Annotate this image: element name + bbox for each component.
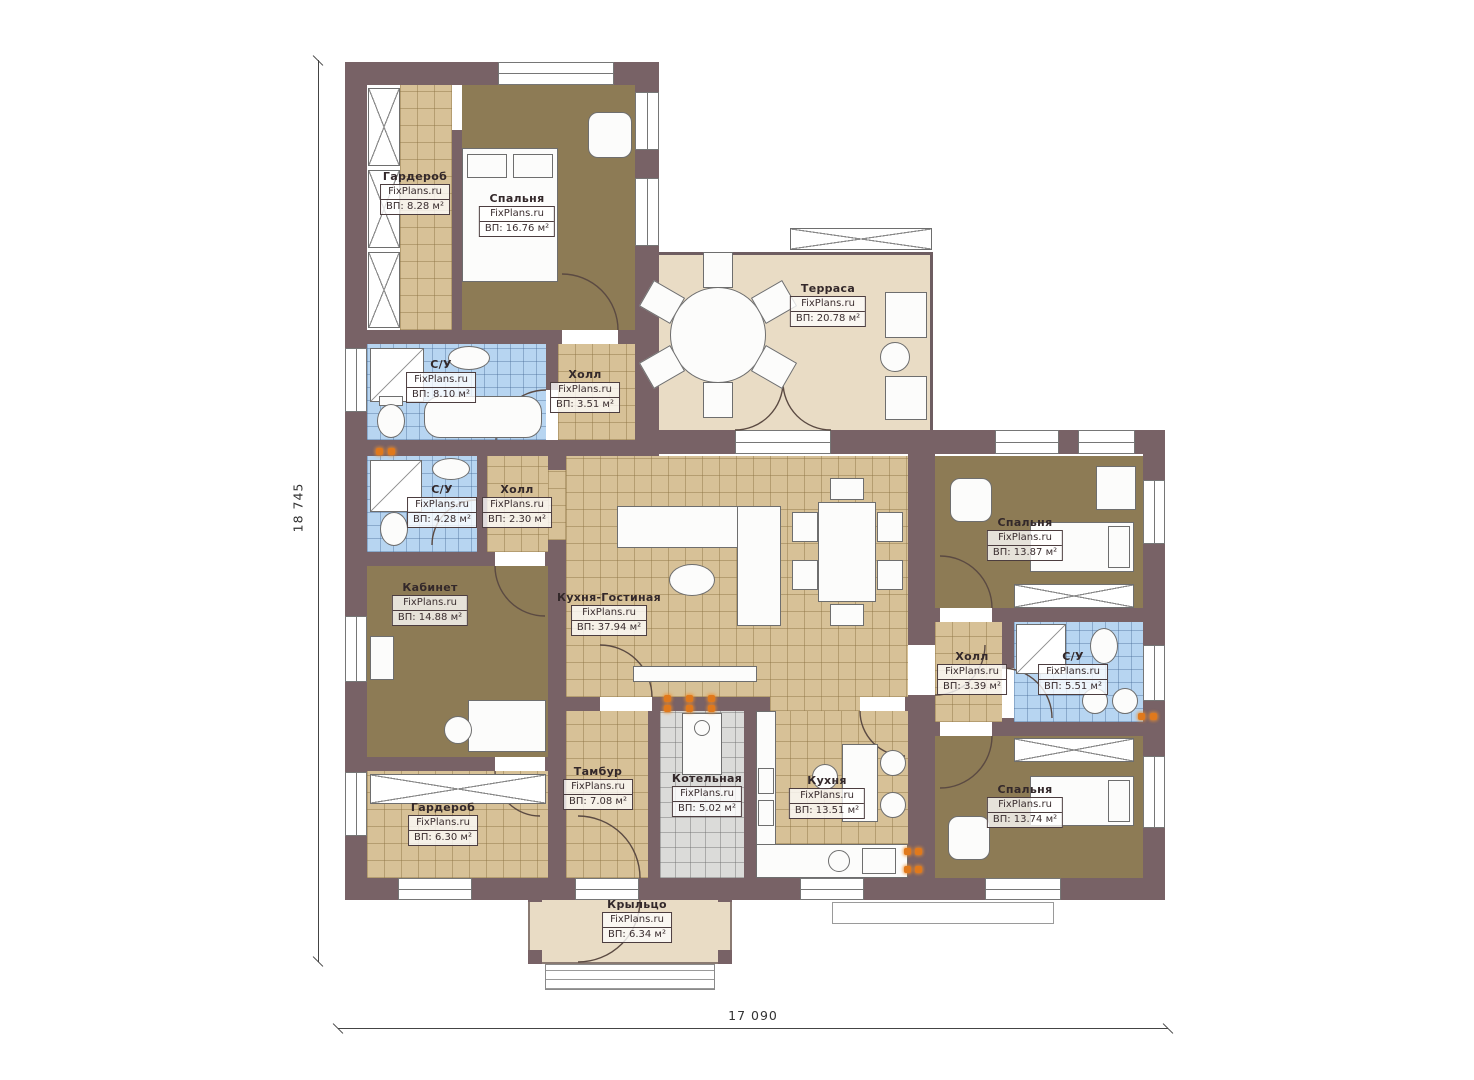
room-area: ВП: 8.28 м² (381, 200, 449, 214)
tv-stand (633, 666, 757, 682)
light-dot (664, 705, 671, 712)
toilet (380, 512, 408, 546)
room-name: С/У (406, 358, 476, 371)
light-dot (376, 448, 383, 455)
watermark: FixPlans.ru (381, 185, 449, 200)
chair (880, 792, 906, 818)
light-dot (1150, 713, 1157, 720)
window (1078, 430, 1135, 454)
light-dot (904, 848, 911, 855)
room-name: Крыльцо (602, 898, 672, 911)
room-area: ВП: 13.74 м² (988, 813, 1062, 827)
toilet (377, 404, 405, 438)
watermark: FixPlans.ru (393, 596, 467, 611)
chair (830, 604, 864, 626)
pillow (467, 154, 507, 178)
pillow (513, 154, 553, 178)
nightstand (1096, 466, 1136, 510)
terrace-seat (885, 292, 927, 338)
porch-post (528, 950, 542, 964)
door-gap (495, 757, 545, 771)
window (345, 616, 367, 682)
room-label-terrace: Терраса FixPlans.ru ВП: 20.78 м² (790, 282, 866, 327)
room-name: Терраса (790, 282, 866, 295)
room-label-kitchen: Кухня FixPlans.ru ВП: 13.51 м² (789, 774, 865, 819)
window (635, 178, 659, 246)
appliance (758, 800, 774, 826)
room-label-bathroom-3: С/У FixPlans.ru ВП: 5.51 м² (1038, 650, 1108, 695)
room-name: Кухня (789, 774, 865, 787)
pillow (1108, 780, 1130, 822)
room-label-kitchen-living: Кухня-Гостиная FixPlans.ru ВП: 37.94 м² (557, 591, 661, 636)
window (985, 878, 1061, 900)
room-label-bathroom-2: С/У FixPlans.ru ВП: 4.28 м² (407, 483, 477, 528)
room-area: ВП: 3.39 м² (938, 680, 1006, 694)
room-label-bedroom-right-1: Спальня FixPlans.ru ВП: 13.87 м² (987, 516, 1063, 561)
room-name: Спальня (987, 516, 1063, 529)
dimension-width-label: 17 090 (338, 1008, 1168, 1023)
room-name: Спальня (479, 192, 555, 205)
room-name: Холл (550, 368, 620, 381)
wardrobe-cabinet (368, 88, 400, 166)
room-name: С/У (1038, 650, 1108, 663)
terrace-seat (885, 376, 927, 420)
coffee-table (669, 564, 715, 596)
window (995, 430, 1059, 454)
room-name: Котельная (672, 772, 742, 785)
watermark: FixPlans.ru (938, 665, 1006, 680)
watermark: FixPlans.ru (407, 373, 475, 388)
porch-steps (545, 964, 715, 990)
dimension-line-vertical (318, 60, 319, 962)
porch-post (528, 888, 542, 902)
window (1143, 756, 1165, 828)
radiator (370, 636, 394, 680)
room-label-bathroom-1: С/У FixPlans.ru ВП: 8.10 м² (406, 358, 476, 403)
chair (703, 252, 733, 288)
light-dot (686, 695, 693, 702)
room-area: ВП: 5.51 м² (1039, 680, 1107, 694)
watermark: FixPlans.ru (480, 207, 554, 222)
chair (792, 560, 818, 590)
chair (880, 750, 906, 776)
room-label-wardrobe-top: Гардероб FixPlans.ru ВП: 8.28 м² (380, 170, 450, 215)
light-dot (388, 448, 395, 455)
window (345, 348, 367, 412)
porch-post (718, 888, 732, 902)
light-dot (904, 866, 911, 873)
sink (432, 458, 470, 480)
light-dot (708, 695, 715, 702)
door-gap (495, 552, 545, 566)
room-label-hall-3: Холл FixPlans.ru ВП: 3.39 м² (937, 650, 1007, 695)
room-area: ВП: 13.51 м² (790, 804, 864, 818)
room-area: ВП: 6.30 м² (409, 831, 477, 845)
room-name: Спальня (987, 783, 1063, 796)
room-area: ВП: 6.34 м² (603, 928, 671, 942)
watermark: FixPlans.ru (791, 297, 865, 312)
light-dot (1138, 713, 1145, 720)
door-gap (860, 697, 905, 711)
wardrobe-cabinet (1014, 738, 1134, 762)
kitchen-sink (828, 850, 850, 872)
light-dot (708, 705, 715, 712)
room-area: ВП: 16.76 м² (480, 222, 554, 236)
room-area: ВП: 5.02 м² (673, 802, 741, 816)
light-dot (915, 866, 922, 873)
wall-boiler-kitchen (744, 711, 756, 878)
desk (468, 700, 546, 752)
chair (877, 560, 903, 590)
watermark: FixPlans.ru (564, 780, 632, 795)
armchair (950, 478, 992, 522)
room-area: ВП: 4.28 м² (408, 513, 476, 527)
side-table (880, 342, 910, 372)
terrace-double-door (735, 430, 831, 454)
porch-post (718, 950, 732, 964)
stove (862, 848, 896, 874)
boiler-dial (694, 720, 710, 736)
window (1143, 645, 1165, 701)
door-gap (562, 330, 618, 344)
room-label-bedroom-top: Спальня FixPlans.ru ВП: 16.76 м² (479, 192, 555, 237)
washer (1112, 688, 1138, 714)
floor-plan-canvas: Гардероб FixPlans.ru ВП: 8.28 м² Спальня… (0, 0, 1474, 1080)
room-area: ВП: 3.51 м² (551, 398, 619, 412)
wardrobe-cabinet (368, 252, 400, 328)
room-area: ВП: 7.08 м² (564, 795, 632, 809)
terrace-canopy (790, 228, 932, 250)
window (1143, 480, 1165, 544)
watermark: FixPlans.ru (673, 787, 741, 802)
chair (830, 478, 864, 500)
room-name: Гардероб (380, 170, 450, 183)
appliance (758, 768, 774, 794)
dimension-line-horizontal (338, 1028, 1168, 1029)
dining-table (818, 502, 876, 602)
pillow (1108, 526, 1130, 568)
wall-wardrobe-bedroom (452, 130, 462, 330)
room-label-porch: Крыльцо FixPlans.ru ВП: 6.34 м² (602, 898, 672, 943)
door-gap (908, 645, 935, 695)
room-label-bedroom-right-2: Спальня FixPlans.ru ВП: 13.74 м² (987, 783, 1063, 828)
room-label-hall-1: Холл FixPlans.ru ВП: 3.51 м² (550, 368, 620, 413)
room-name: Кабинет (392, 581, 468, 594)
window (635, 92, 659, 150)
room-name: Холл (482, 483, 552, 496)
entry-door (575, 878, 639, 900)
window (498, 62, 614, 85)
room-label-study: Кабинет FixPlans.ru ВП: 14.88 м² (392, 581, 468, 626)
chair (792, 512, 818, 542)
sofa (737, 506, 781, 626)
wardrobe-cabinet (1014, 584, 1134, 608)
chair (877, 512, 903, 542)
room-name: Кухня-Гостиная (557, 591, 661, 604)
room-label-boiler-room: Котельная FixPlans.ru ВП: 5.02 м² (672, 772, 742, 817)
watermark: FixPlans.ru (409, 816, 477, 831)
door-gap (940, 608, 992, 622)
wall-vestibule-boiler (648, 711, 660, 878)
room-area: ВП: 8.10 м² (407, 388, 475, 402)
watermark: FixPlans.ru (790, 789, 864, 804)
watermark: FixPlans.ru (408, 498, 476, 513)
room-label-vestibule: Тамбур FixPlans.ru ВП: 7.08 м² (563, 765, 633, 810)
room-label-wardrobe-bottom: Гардероб FixPlans.ru ВП: 6.30 м² (408, 801, 478, 846)
dimension-height-label: 18 745 (291, 478, 306, 538)
desk-chair (444, 716, 472, 744)
armchair (948, 816, 990, 860)
window (800, 878, 864, 900)
watermark: FixPlans.ru (988, 798, 1062, 813)
room-name: С/У (407, 483, 477, 496)
light-dot (664, 695, 671, 702)
room-name: Холл (937, 650, 1007, 663)
room-area: ВП: 37.94 м² (572, 621, 646, 635)
room-area: ВП: 14.88 м² (393, 611, 467, 625)
chair (703, 382, 733, 418)
armchair (588, 112, 632, 158)
back-step (832, 902, 1054, 924)
room-label-hall-2: Холл FixPlans.ru ВП: 2.30 м² (482, 483, 552, 528)
room-area: ВП: 20.78 м² (791, 312, 865, 326)
watermark: FixPlans.ru (572, 606, 646, 621)
watermark: FixPlans.ru (1039, 665, 1107, 680)
wardrobe-cabinet (370, 774, 546, 804)
door-gap (600, 697, 652, 711)
light-dot (915, 848, 922, 855)
room-area: ВП: 2.30 м² (483, 513, 551, 527)
room-area: ВП: 13.87 м² (988, 546, 1062, 560)
watermark: FixPlans.ru (988, 531, 1062, 546)
door-gap (940, 722, 992, 736)
room-name: Тамбур (563, 765, 633, 778)
watermark: FixPlans.ru (603, 913, 671, 928)
light-dot (686, 705, 693, 712)
window (345, 772, 367, 836)
watermark: FixPlans.ru (483, 498, 551, 513)
room-name: Гардероб (408, 801, 478, 814)
window (398, 878, 472, 900)
watermark: FixPlans.ru (551, 383, 619, 398)
passage-opening (770, 697, 860, 711)
